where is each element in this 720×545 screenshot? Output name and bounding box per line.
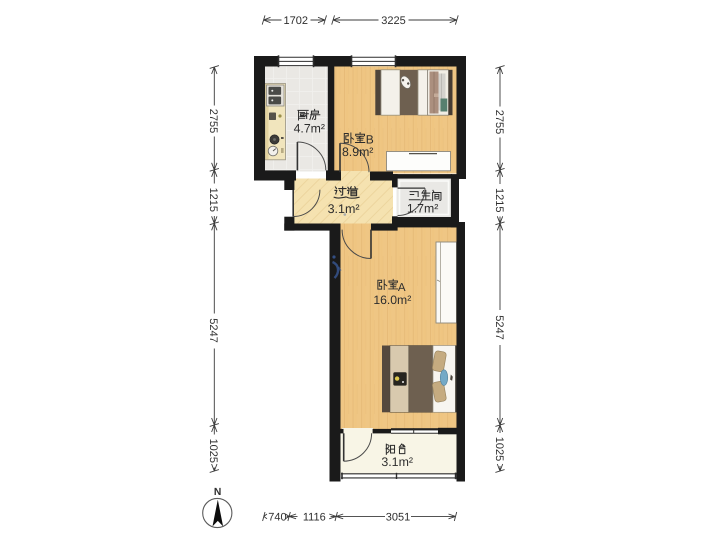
svg-text:8.9m²: 8.9m² [342, 145, 373, 159]
svg-text:16.0m²: 16.0m² [373, 293, 411, 307]
svg-text:3.1m²: 3.1m² [328, 202, 360, 216]
svg-text:2755: 2755 [493, 110, 505, 134]
svg-text:1215: 1215 [207, 188, 219, 212]
svg-text:4.7m²: 4.7m² [294, 122, 325, 136]
svg-text:N: N [214, 487, 221, 498]
svg-text:3.1m²: 3.1m² [381, 455, 413, 469]
svg-text:5247: 5247 [493, 315, 505, 339]
svg-text:740: 740 [268, 512, 286, 524]
svg-text:1116: 1116 [303, 512, 326, 524]
svg-text:5247: 5247 [207, 318, 219, 342]
svg-text:3051: 3051 [386, 512, 410, 524]
svg-text:1025: 1025 [207, 439, 219, 463]
svg-text:1025: 1025 [493, 437, 505, 461]
svg-text:1702: 1702 [284, 15, 308, 27]
svg-text:1.7m²: 1.7m² [407, 202, 438, 216]
svg-text:1215: 1215 [493, 188, 505, 212]
svg-text:3225: 3225 [381, 15, 405, 27]
svg-text:2755: 2755 [207, 109, 219, 133]
